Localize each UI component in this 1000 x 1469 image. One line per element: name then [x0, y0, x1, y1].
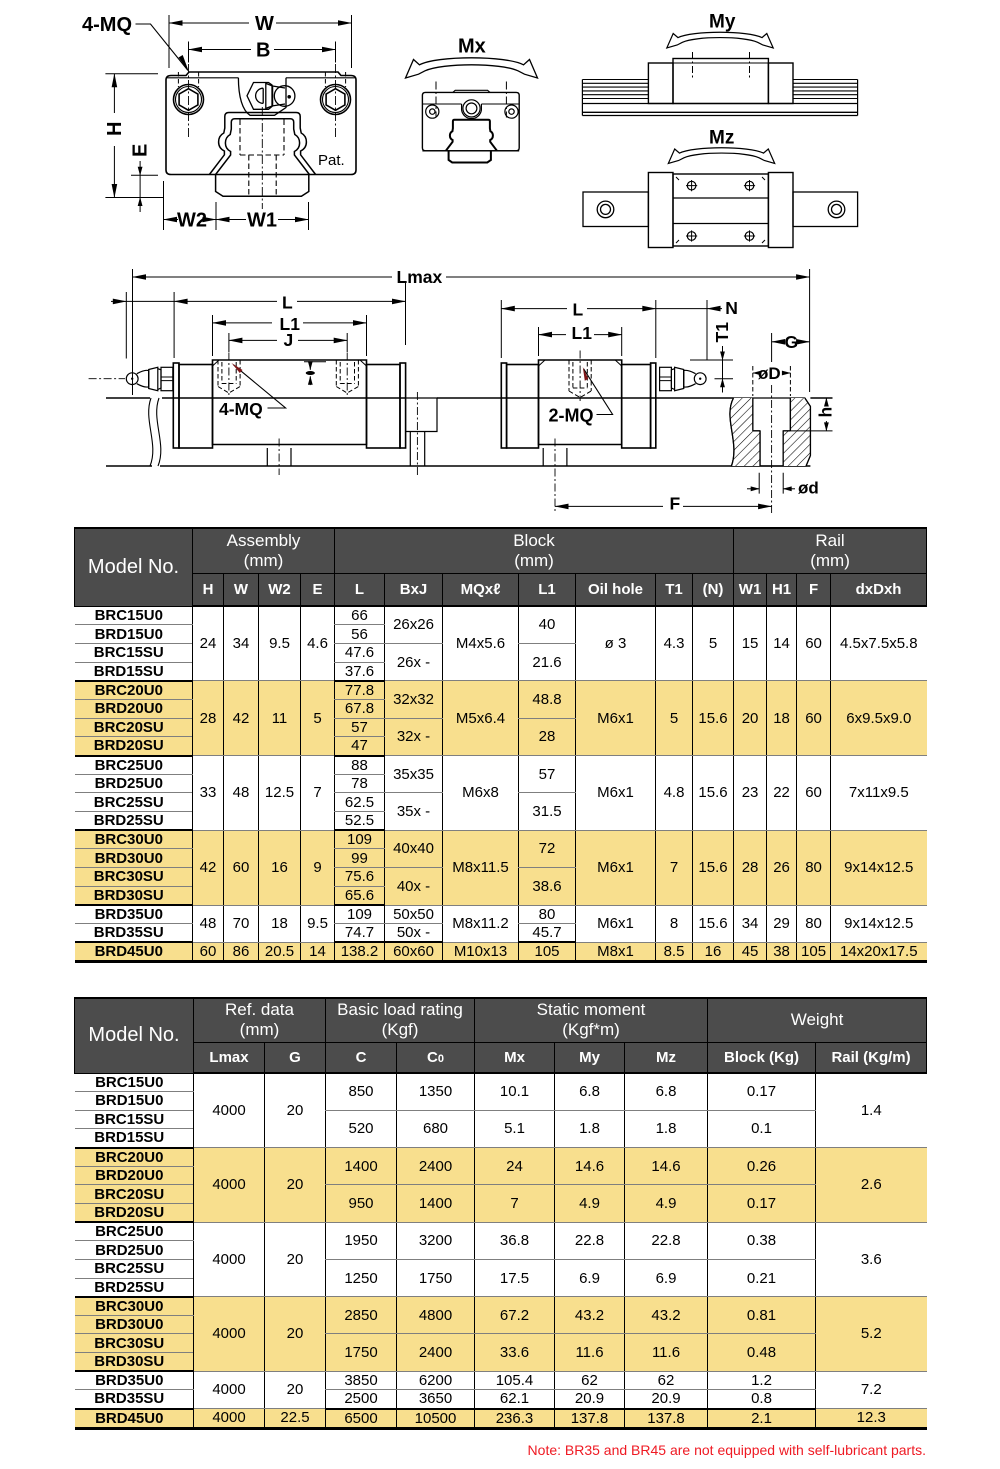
- svg-text:W: W: [255, 13, 274, 35]
- svg-text:F: F: [670, 494, 681, 514]
- svg-text:Mx: Mx: [458, 36, 486, 58]
- svg-text:øD: øD: [758, 364, 781, 383]
- svg-text:W2: W2: [177, 210, 207, 232]
- svg-text:W1: W1: [247, 210, 277, 232]
- svg-text:Pat.: Pat.: [318, 152, 345, 169]
- svg-text:T1: T1: [712, 322, 732, 343]
- svg-text:h: h: [816, 407, 836, 418]
- svg-text:Lmax: Lmax: [397, 267, 443, 287]
- svg-text:G: G: [785, 332, 799, 352]
- svg-text:E: E: [130, 144, 152, 157]
- svg-text:L: L: [282, 293, 293, 313]
- svg-text:J: J: [284, 330, 294, 350]
- svg-text:B: B: [256, 40, 270, 62]
- svg-text:H: H: [104, 122, 126, 136]
- svg-text:ød: ød: [798, 479, 819, 498]
- svg-text:2-MQ: 2-MQ: [549, 406, 594, 426]
- svg-text:4-MQ: 4-MQ: [219, 399, 263, 419]
- svg-text:4-MQ: 4-MQ: [82, 14, 132, 36]
- svg-text:L1: L1: [572, 323, 593, 343]
- svg-text:Mz: Mz: [709, 128, 734, 149]
- svg-text:L: L: [573, 300, 584, 320]
- svg-text:My: My: [709, 12, 736, 33]
- svg-text:N: N: [725, 298, 738, 318]
